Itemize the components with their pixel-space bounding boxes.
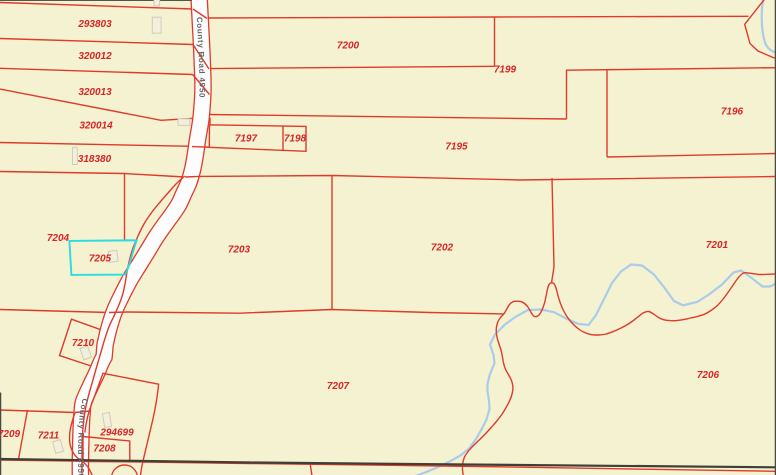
svg-text:7197: 7197 (235, 134, 258, 145)
svg-text:7199: 7199 (494, 65, 517, 76)
svg-text:294699: 294699 (99, 428, 134, 439)
svg-text:7209: 7209 (0, 429, 21, 440)
svg-text:7204: 7204 (47, 233, 70, 244)
svg-text:7206: 7206 (697, 370, 720, 381)
svg-text:318380: 318380 (78, 154, 112, 165)
svg-text:7196: 7196 (721, 107, 744, 118)
svg-text:7202: 7202 (431, 243, 454, 254)
svg-text:293803: 293803 (77, 19, 112, 30)
svg-text:7208: 7208 (93, 444, 116, 455)
svg-text:320013: 320013 (78, 87, 112, 98)
svg-text:7201: 7201 (706, 240, 729, 251)
svg-text:320012: 320012 (78, 51, 112, 62)
svg-text:7200: 7200 (337, 41, 360, 52)
svg-text:320014: 320014 (79, 121, 113, 132)
svg-text:7198: 7198 (284, 134, 307, 145)
svg-text:7211: 7211 (38, 431, 60, 442)
svg-text:7207: 7207 (327, 381, 350, 392)
svg-text:7203: 7203 (228, 245, 251, 256)
svg-text:7195: 7195 (445, 142, 468, 153)
svg-text:7210: 7210 (72, 338, 95, 349)
svg-text:7205: 7205 (89, 254, 112, 265)
